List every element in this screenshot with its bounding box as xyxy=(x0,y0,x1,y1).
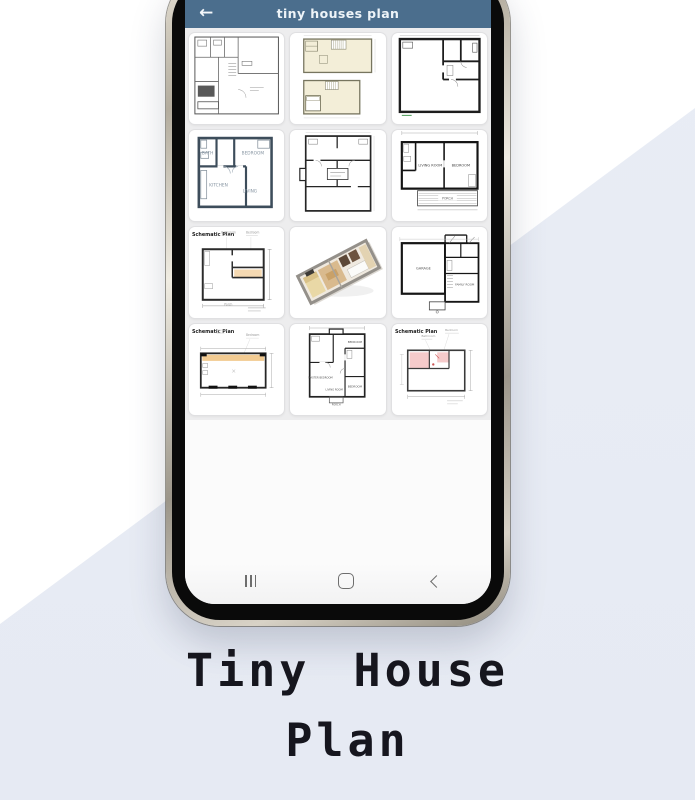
svg-text:LIVING ROOM: LIVING ROOM xyxy=(418,163,442,167)
floorplan-schematic-b-drawing: Schematic Plan Bedroom xyxy=(189,324,284,415)
floorplan-bw-thick-thumbnail[interactable] xyxy=(391,32,488,125)
recents-icon[interactable] xyxy=(241,571,260,591)
floorplan-multi-room-thumbnail[interactable]: BEDROOM MASTER BEDROOM LIVING ROOM BEDRO… xyxy=(289,323,386,416)
svg-text:Bedroom: Bedroom xyxy=(445,328,458,332)
floorplan-garage-thumbnail[interactable]: GARAGE FAMILY ROOM xyxy=(391,226,488,319)
floorplan-schematic-a-drawing: Schematic Plan Bathroom Bedroom Porch xyxy=(189,227,284,318)
floorplan-schematic-pink-drawing: Schematic Plan Bedroom Bathroom xyxy=(392,324,487,415)
svg-text:Schematic Plan: Schematic Plan xyxy=(192,329,235,335)
svg-text:Bathroom: Bathroom xyxy=(221,231,236,235)
caption: Tiny House Plan xyxy=(0,636,695,776)
floorplan-bw-dense-thumbnail[interactable] xyxy=(188,32,285,125)
svg-text:PORCH: PORCH xyxy=(442,197,454,201)
floorplan-schematic-a-thumbnail[interactable]: Schematic Plan Bathroom Bedroom Porch xyxy=(188,226,285,319)
floorplan-garage-drawing: GARAGE FAMILY ROOM xyxy=(392,227,487,318)
page: ← tiny houses plan BATH BEDROOM KITCHEN … xyxy=(0,0,695,800)
svg-text:KITCHEN: KITCHEN xyxy=(209,183,228,189)
svg-text:BEDROOM: BEDROOM xyxy=(348,340,363,344)
floorplan-3d-iso-thumbnail[interactable] xyxy=(289,226,386,319)
svg-text:BATH: BATH xyxy=(202,150,213,156)
svg-text:Bathroom: Bathroom xyxy=(421,334,435,338)
svg-text:BEDROOM: BEDROOM xyxy=(348,385,363,389)
floorplan-labeled-drawing: BATH BEDROOM KITCHEN LIVING xyxy=(189,130,284,221)
nav-back-icon[interactable] xyxy=(430,575,443,588)
floorplan-3d-iso-drawing xyxy=(290,227,385,318)
svg-text:MASTER BEDROOM: MASTER BEDROOM xyxy=(309,376,334,380)
floorplan-symmetric-drawing xyxy=(290,130,385,221)
svg-text:BEDROOM: BEDROOM xyxy=(451,163,469,167)
phone-bezel: ← tiny houses plan BATH BEDROOM KITCHEN … xyxy=(172,0,504,620)
floorplan-schematic-b-thumbnail[interactable]: Schematic Plan Bedroom xyxy=(188,323,285,416)
caption-line-2: Plan xyxy=(0,706,695,776)
page-title: tiny houses plan xyxy=(185,6,491,21)
svg-text:LIVING: LIVING xyxy=(243,189,258,195)
app-bar: ← tiny houses plan xyxy=(185,0,491,28)
floorplan-symmetric-thumbnail[interactable] xyxy=(289,129,386,222)
floorplan-labeled-thumbnail[interactable]: BATH BEDROOM KITCHEN LIVING xyxy=(188,129,285,222)
svg-text:LIVING ROOM: LIVING ROOM xyxy=(326,388,343,392)
phone-screen: ← tiny houses plan BATH BEDROOM KITCHEN … xyxy=(185,0,491,604)
svg-text:Bedroom: Bedroom xyxy=(246,231,259,235)
floorplan-two-story-thumbnail[interactable] xyxy=(289,32,386,125)
phone-mockup: ← tiny houses plan BATH BEDROOM KITCHEN … xyxy=(166,0,510,626)
back-arrow-icon[interactable]: ← xyxy=(199,5,213,22)
svg-text:Porch: Porch xyxy=(224,302,232,306)
screen-empty-area xyxy=(185,420,491,564)
home-icon[interactable] xyxy=(338,573,354,589)
floorplan-bw-dense-drawing xyxy=(189,33,284,124)
svg-text:Bedroom: Bedroom xyxy=(246,333,259,337)
svg-text:PORCH: PORCH xyxy=(332,402,341,406)
floorplan-bw-thick-drawing xyxy=(392,33,487,124)
floorplan-multi-room-drawing: BEDROOM MASTER BEDROOM LIVING ROOM BEDRO… xyxy=(290,324,385,415)
floorplan-porch-drawing: LIVING ROOM BEDROOM PORCH xyxy=(392,130,487,221)
caption-line-1: Tiny House xyxy=(0,636,695,706)
svg-text:GARAGE: GARAGE xyxy=(416,266,431,270)
svg-text:BEDROOM: BEDROOM xyxy=(242,150,265,156)
floorplan-two-story-drawing xyxy=(290,33,385,124)
plan-grid: BATH BEDROOM KITCHEN LIVING LIVING ROOM … xyxy=(185,28,491,420)
svg-text:FAMILY ROOM: FAMILY ROOM xyxy=(455,283,475,287)
floorplan-schematic-pink-thumbnail[interactable]: Schematic Plan Bedroom Bathroom xyxy=(391,323,488,416)
floorplan-porch-thumbnail[interactable]: LIVING ROOM BEDROOM PORCH xyxy=(391,129,488,222)
android-nav-bar xyxy=(185,564,491,604)
